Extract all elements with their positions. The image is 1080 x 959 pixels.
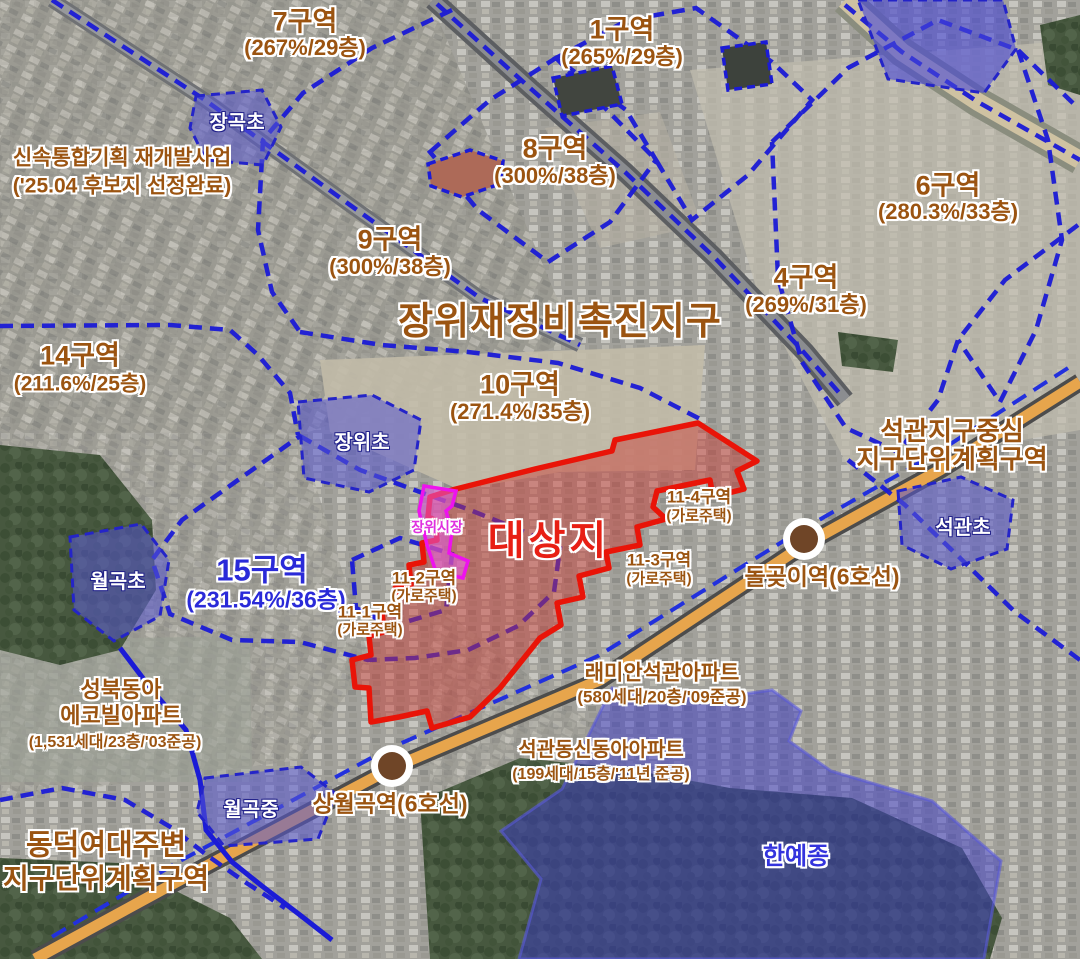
- zone-9-name: 9구역: [358, 227, 423, 254]
- zone-4-name: 4구역: [774, 265, 839, 292]
- apt-seongbuk-spec: (1,531세대/23층/'03준공): [29, 735, 202, 751]
- zone-6-spec: (280.3%/33층): [878, 201, 1018, 223]
- zone-11-1-type: (가로주택): [337, 623, 402, 638]
- zone-15-spec: (231.54%/36층): [186, 589, 345, 612]
- school-wolgok-elem-label: 월곡초: [90, 572, 145, 592]
- zone-8-spec: (300%/38층): [494, 165, 616, 187]
- apt-seongbuk-name2: 에코빌아파트: [60, 705, 181, 727]
- market-label: 장위시장: [411, 520, 463, 534]
- zone-11-4-name: 11-4구역: [667, 489, 731, 506]
- dongduk-district-line1: 동덕여대주변: [26, 832, 186, 861]
- zone-11-1-name: 11-1구역: [338, 604, 402, 621]
- zone-11-4-type: (가로주택): [666, 509, 731, 524]
- zone-15-name: 15구역: [216, 555, 308, 586]
- zone-1-spec: (265%/29층): [561, 46, 683, 68]
- zone-7-spec: (267%/29층): [244, 37, 366, 59]
- station-dolgoji-label: 돌곶이역(6호선): [744, 566, 899, 589]
- satellite-map: 장위재정비촉진지구 신속통합기획 재개발사업 ('25.04 후보지 선정완료)…: [0, 0, 1080, 959]
- zone-6-name: 6구역: [916, 173, 981, 200]
- dongduk-district-line2: 지구단위계획구역: [3, 865, 209, 893]
- seokgwan-district-line1: 석관지구중심: [880, 418, 1024, 444]
- zone-9-spec: (300%/38층): [329, 256, 451, 278]
- fast-track-note-line1: 신속통합기획 재개발사업: [13, 148, 231, 169]
- apt-raemian-spec: (580세대/20층/'09준공): [577, 689, 746, 706]
- station-sangwolgok-label: 상월곡역(6호선): [312, 793, 467, 816]
- zone-11-3-name: 11-3구역: [627, 552, 691, 569]
- apt-shindonga-spec: (199세대/15층/'11년 준공): [512, 767, 690, 783]
- school-wolgok-mid-label: 월곡중: [223, 800, 278, 820]
- zone-11-2-type: (가로주택): [391, 589, 456, 604]
- station-marker-dolgoji: [783, 518, 825, 560]
- zone-7-name: 7구역: [273, 9, 338, 36]
- zone-14-name: 14구역: [40, 343, 120, 370]
- school-seokgwan-label: 석관초: [935, 518, 990, 538]
- zone-11-3-type: (가로주택): [626, 572, 691, 587]
- zone-10-name: 10구역: [480, 372, 560, 399]
- zone-1-name: 1구역: [590, 17, 655, 44]
- zone-8-name: 8구역: [523, 136, 588, 163]
- target-site-label: 대상지: [488, 521, 610, 561]
- hanyejong-label: 한예종: [763, 845, 829, 869]
- zone-11-2-name: 11-2구역: [392, 570, 456, 587]
- seokgwan-district-line2: 지구단위계획구역: [856, 446, 1047, 472]
- apt-shindonga-name: 석관동신동아아파트: [518, 740, 684, 760]
- fast-track-note-line2: ('25.04 후보지 선정완료): [13, 176, 231, 197]
- zone-14-spec: (211.6%/25층): [14, 374, 147, 395]
- district-title: 장위재정비촉진지구: [398, 303, 722, 341]
- apt-seongbuk-name: 성북동아: [81, 679, 162, 701]
- zone-4-spec: (269%/31층): [745, 294, 867, 316]
- school-janggok-label: 장곡초: [209, 113, 264, 133]
- zone-10-spec: (271.4%/35층): [450, 401, 590, 423]
- station-marker-sangwolgok: [371, 745, 413, 787]
- school-jangwi-label: 장위초: [334, 433, 389, 453]
- apt-raemian-name: 래미안석관아파트: [585, 663, 740, 684]
